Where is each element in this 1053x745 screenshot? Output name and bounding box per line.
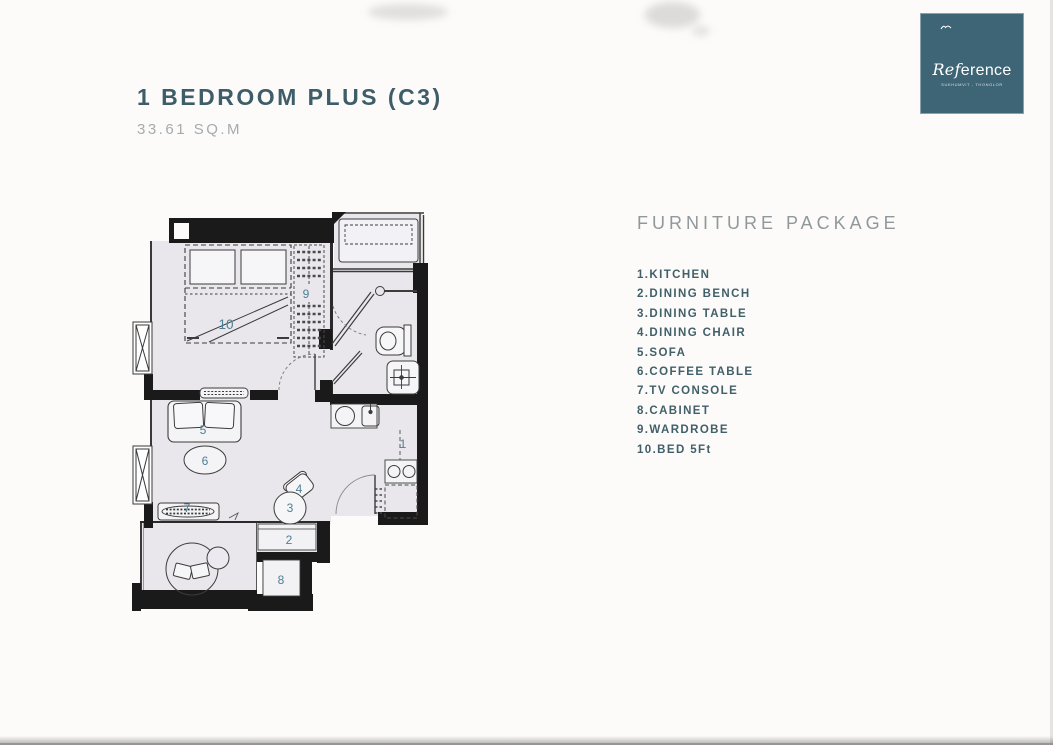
sofa-cushion <box>204 402 234 428</box>
furniture-list: 1.KITCHEN 2.DINING BENCH 3.DINING TABLE … <box>637 266 900 460</box>
bird-icon <box>940 24 952 31</box>
furniture-item: 5.SOFA <box>637 344 900 363</box>
plan-label: 8 <box>278 573 285 587</box>
logo-tagline: SUKHUMVIT - THONGLOR <box>920 82 1024 87</box>
furniture-item: 10.BED 5Ft <box>637 441 900 460</box>
furniture-item: 4.DINING CHAIR <box>637 324 900 343</box>
page-title: 1 BEDROOM PLUS (C3) <box>137 84 443 111</box>
floor-plan-svg: 1 2 3 4 5 6 7 8 9 10 <box>129 208 431 615</box>
brand-logo: Reference SUKHUMVIT - THONGLOR <box>920 13 1024 114</box>
furniture-item: 6.COFFEE TABLE <box>637 363 900 382</box>
plan-label: 5 <box>200 423 207 437</box>
plan-label: 9 <box>303 287 310 301</box>
window-left-bedroom <box>133 322 152 374</box>
pillow <box>190 250 235 284</box>
plan-label: 10 <box>218 317 233 332</box>
washbasin <box>387 361 419 394</box>
furniture-item: 2.DINING BENCH <box>637 285 900 304</box>
furniture-heading: FURNITURE PACKAGE <box>637 213 900 234</box>
area-label: 33.61 SQ.M <box>137 121 443 138</box>
plan-label: 6 <box>202 454 209 468</box>
logo-brand: Reference <box>920 60 1024 80</box>
pillow <box>241 250 286 284</box>
furniture-item: 3.DINING TABLE <box>637 305 900 324</box>
brochure-page: 1 BEDROOM PLUS (C3) 33.61 SQ.M Reference… <box>0 0 1053 745</box>
furniture-item: 9.WARDROBE <box>637 421 900 440</box>
toilet <box>376 325 411 356</box>
wall-notch <box>174 223 189 239</box>
scan-smudge <box>692 26 710 36</box>
furniture-package: FURNITURE PACKAGE 1.KITCHEN 2.DINING BEN… <box>637 213 900 460</box>
plan-label: 3 <box>287 501 294 515</box>
scan-smudge <box>368 4 448 20</box>
plan-label: 7 <box>184 501 191 515</box>
side-table <box>207 547 229 569</box>
kitchen-counter <box>331 404 379 428</box>
furniture-item: 8.CABINET <box>637 402 900 421</box>
wall-shelf <box>200 388 248 398</box>
kitchen-hob <box>385 460 417 483</box>
logo-text: Reference SUKHUMVIT - THONGLOR <box>920 60 1024 87</box>
furniture-item: 1.KITCHEN <box>637 266 900 285</box>
balcony-bench <box>339 219 418 262</box>
plan-label: 2 <box>286 533 293 547</box>
furniture-item: 7.TV CONSOLE <box>637 382 900 401</box>
floor-plan: 1 2 3 4 5 6 7 8 9 10 <box>129 208 431 615</box>
plan-label: 4 <box>296 482 303 496</box>
plan-label: 1 <box>400 437 407 451</box>
title-block: 1 BEDROOM PLUS (C3) 33.61 SQ.M <box>137 84 443 138</box>
window-left-living <box>133 446 152 504</box>
scan-smudge <box>645 2 700 28</box>
